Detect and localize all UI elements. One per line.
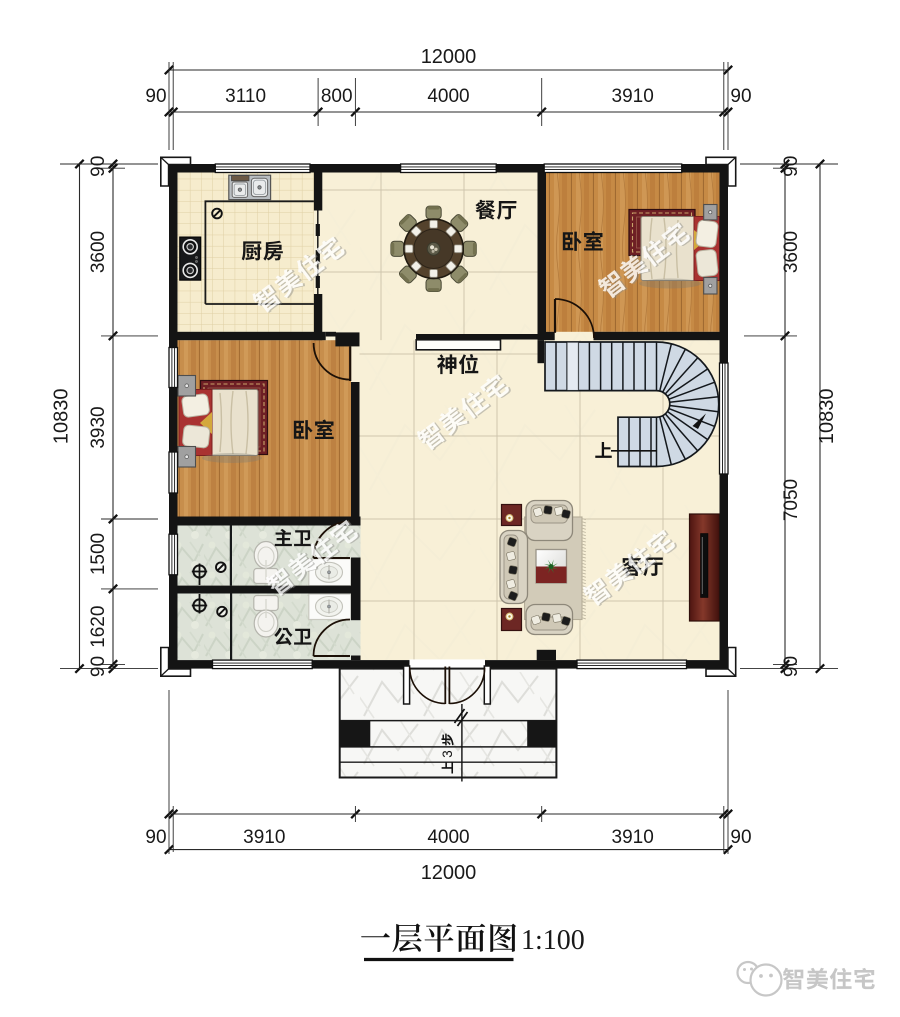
- svg-text:90: 90: [781, 156, 802, 177]
- svg-text:3600: 3600: [781, 231, 802, 273]
- svg-text:12000: 12000: [421, 862, 477, 884]
- svg-text:10830: 10830: [816, 388, 838, 444]
- svg-text:3910: 3910: [612, 86, 654, 107]
- svg-text:1620: 1620: [88, 606, 109, 648]
- svg-text:800: 800: [321, 86, 353, 107]
- svg-text:7050: 7050: [781, 479, 802, 521]
- svg-text:90: 90: [88, 656, 109, 677]
- svg-text:1:100: 1:100: [521, 925, 585, 956]
- svg-text:10830: 10830: [51, 388, 73, 444]
- svg-text:4000: 4000: [427, 827, 469, 848]
- svg-text:3910: 3910: [612, 827, 654, 848]
- svg-text:1500: 1500: [88, 533, 109, 575]
- svg-text:90: 90: [145, 827, 166, 848]
- svg-text:90: 90: [730, 86, 751, 107]
- svg-text:12000: 12000: [421, 46, 477, 68]
- svg-text:3910: 3910: [243, 827, 285, 848]
- svg-text:3930: 3930: [88, 406, 109, 448]
- svg-text:90: 90: [88, 156, 109, 177]
- svg-text:90: 90: [730, 827, 751, 848]
- svg-text:90: 90: [781, 656, 802, 677]
- svg-text:3600: 3600: [88, 231, 109, 273]
- svg-text:4000: 4000: [427, 86, 469, 107]
- svg-text:90: 90: [145, 86, 166, 107]
- svg-text:3110: 3110: [225, 86, 266, 107]
- svg-text:3: 3: [440, 750, 455, 758]
